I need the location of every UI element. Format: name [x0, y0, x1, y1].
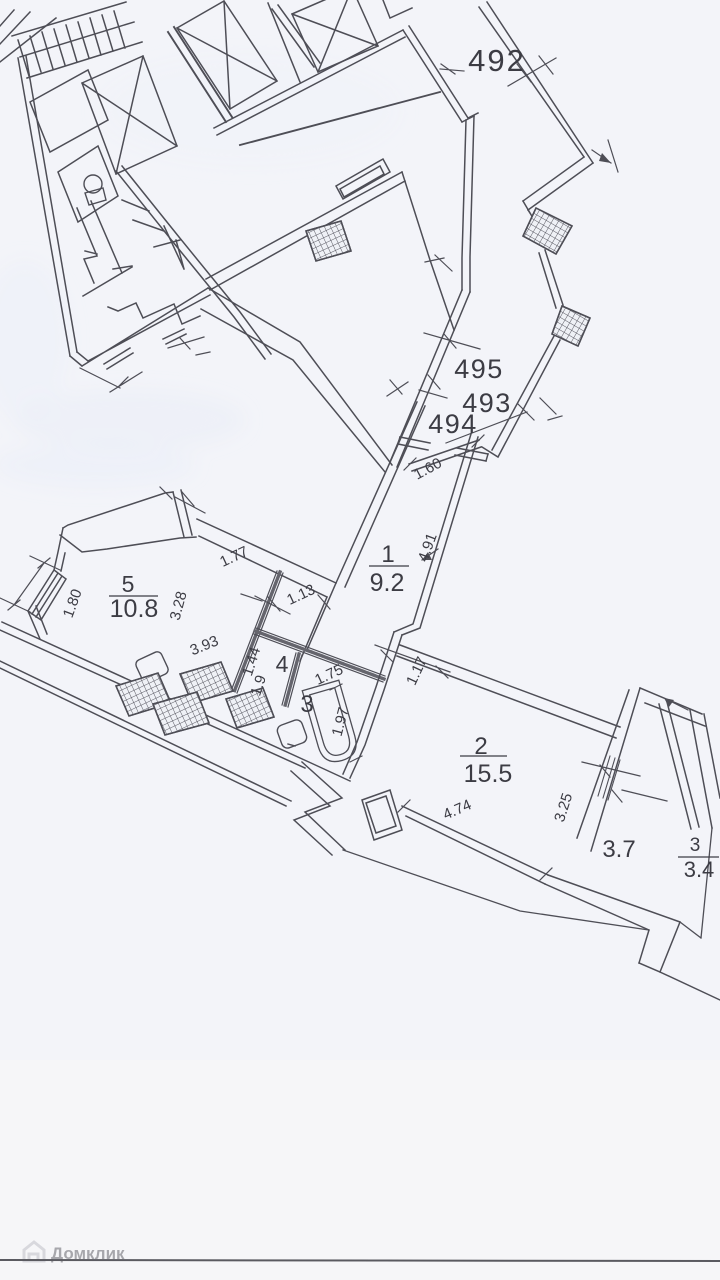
svg-text:3: 3: [690, 835, 701, 856]
svg-text:1: 1: [381, 541, 394, 568]
svg-text:4: 4: [276, 651, 289, 677]
svg-text:492: 492: [468, 43, 526, 78]
svg-text:10.8: 10.8: [110, 595, 159, 623]
svg-text:3.7: 3.7: [602, 836, 635, 863]
svg-text:495: 495: [454, 354, 504, 384]
svg-text:494: 494: [428, 409, 478, 439]
svg-text:9.2: 9.2: [370, 569, 405, 597]
svg-text:15.5: 15.5: [464, 760, 513, 788]
svg-text:5: 5: [122, 571, 135, 597]
svg-text:3: 3: [300, 691, 313, 718]
svg-text:3.4: 3.4: [684, 857, 715, 882]
